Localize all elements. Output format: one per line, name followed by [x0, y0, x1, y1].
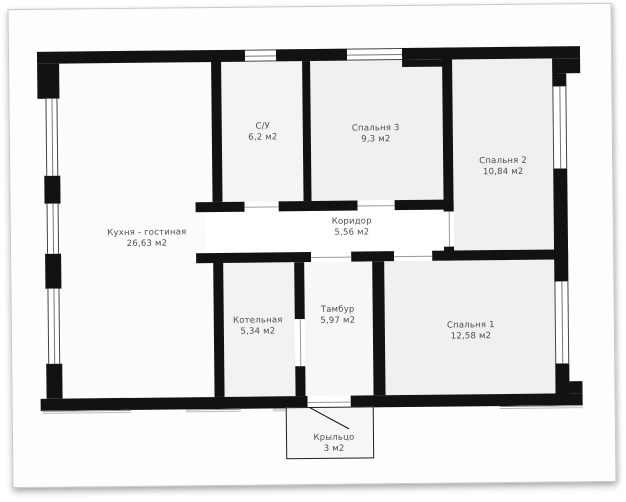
- label-corridor: Коридор 5,56 м2: [292, 216, 412, 239]
- wall-corridor-bottom: [351, 251, 394, 261]
- wall-right: [553, 168, 568, 281]
- label-bedroom2: Спальня 2 10,84 м2: [443, 155, 563, 178]
- door-bathroom: [245, 201, 279, 211]
- room-tambour: [304, 261, 373, 396]
- sill-line: [43, 410, 131, 414]
- window: [47, 289, 60, 364]
- room-area: 26,63 м2: [77, 238, 217, 250]
- sill-line: [186, 409, 241, 413]
- wall-boiler-tambour: [295, 366, 305, 396]
- room-name: Тамбур: [298, 304, 378, 316]
- room-area: 5,56 м2: [292, 227, 412, 239]
- room-area: 10,84 м2: [443, 166, 563, 178]
- door-bedroom3: [358, 200, 395, 210]
- floor-plan: Кухня - гостиная 26,63 м2 С/У 6,2 м2 Спа…: [0, 0, 626, 502]
- window: [245, 49, 276, 61]
- label-bathroom: С/У 6,2 м2: [223, 121, 303, 144]
- door-bedroom1: [394, 251, 432, 261]
- door-bedroom2: [444, 212, 454, 247]
- wall-corridor-top: [196, 202, 245, 213]
- wall-bathroom-bedroom3: [302, 61, 311, 201]
- wall-bedroom3-bedroom2: [442, 48, 454, 212]
- label-tambour: Тамбур 5,97 м2: [298, 304, 378, 327]
- room-area: 6,2 м2: [223, 132, 303, 144]
- window: [47, 204, 60, 254]
- wall-tambour-bedroom1: [372, 261, 385, 395]
- window: [554, 281, 569, 363]
- wall-pier: [402, 60, 444, 67]
- wall-left: [44, 176, 60, 204]
- wall-pier: [555, 381, 582, 393]
- label-kitchen: Кухня - гостиная 26,63 м2: [77, 227, 217, 250]
- label-boiler: Котельная 5,34 м2: [218, 315, 298, 338]
- room-area: 3 м2: [294, 443, 374, 455]
- label-bedroom3: Спальня 3 9,3 м2: [316, 123, 436, 146]
- wall-left: [37, 64, 59, 99]
- door-tambour: [311, 252, 351, 262]
- room-area: 5,97 м2: [298, 315, 378, 327]
- window: [347, 48, 402, 61]
- window: [45, 99, 58, 176]
- room-area: 9,3 м2: [316, 134, 436, 146]
- room-area: 5,34 м2: [218, 326, 298, 338]
- room-name: Котельная: [218, 315, 298, 327]
- label-bedroom1: Спальня 1 12,58 м2: [411, 320, 531, 343]
- wall-bottom: [41, 396, 308, 411]
- wall-left: [45, 254, 61, 289]
- wall-right: [552, 73, 566, 86]
- floor-plan-photo: Кухня - гостиная 26,63 м2 С/У 6,2 м2 Спа…: [0, 0, 626, 502]
- wall-kitchen-right: [211, 62, 222, 202]
- wall-left: [46, 364, 62, 399]
- room-bedroom2: [452, 58, 554, 250]
- room-name: Крыльцо: [294, 432, 374, 444]
- wall-corridor-top: [279, 201, 358, 212]
- sill-line: [500, 405, 583, 409]
- wall-top: [276, 49, 347, 62]
- room-name: С/У: [223, 121, 303, 133]
- room-area: 12,58 м2: [411, 331, 531, 343]
- wall-bedroom3-bedroom2: [444, 247, 454, 261]
- plan-sheet: Кухня - гостиная 26,63 м2 С/У 6,2 м2 Спа…: [8, 3, 617, 488]
- wall-pier: [552, 58, 580, 73]
- label-porch: Крыльцо 3 м2: [294, 432, 374, 455]
